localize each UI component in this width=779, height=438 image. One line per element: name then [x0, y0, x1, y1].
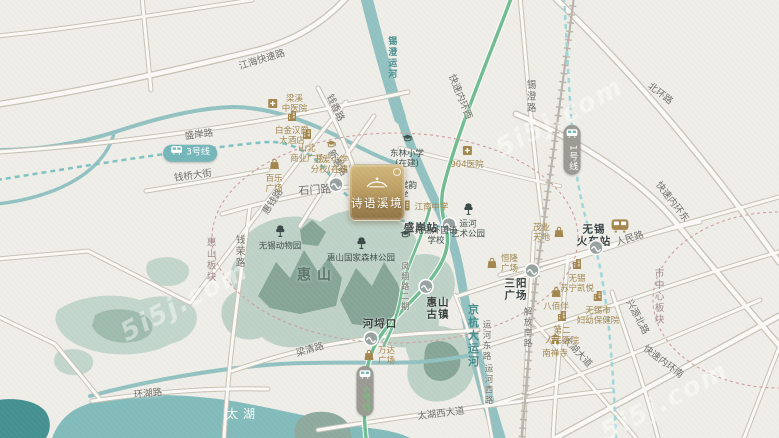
station-label-huishan-old-town-line: 古镇 [427, 309, 450, 321]
poi-baile-plaza-text: 百乐广场 [265, 174, 282, 194]
registered-mark-icon [393, 168, 401, 176]
poi-wuxi-maternity-hospital-line: 无锡市 [577, 306, 620, 316]
poi-baile-plaza[interactable]: 百乐广场 [265, 158, 282, 194]
region-label-huishan-block: 惠山板块 [204, 237, 215, 283]
poi-wuai-primary-school-branch-line: 五爱小学 [311, 155, 352, 165]
poi-nanchan-temple[interactable]: 南禅寺 [542, 333, 568, 359]
map-canvas: 江海快速路盛岸路钱桥大街惠钱路钱香路新惠路石门路快速内环西锡澄路北环路快速内环东… [0, 0, 779, 438]
poi-canal-art-park-text: 运河艺术公园 [451, 219, 485, 239]
road-label-xicheng-road-line: 锡澄路 [524, 80, 535, 115]
poi-huishan-national-forest-park[interactable]: 惠山国家森林公园 [327, 236, 395, 263]
poi-jiangnan-middle-school-line: 江南中学 [414, 202, 448, 212]
road-label-qianqiao-street-text: 钱桥大街 [173, 168, 212, 184]
station-icon-shimen-road[interactable] [328, 177, 344, 198]
poi-baile-plaza-line: 百乐 [265, 174, 282, 184]
road-label-huanhu-road-line: 环湖路 [133, 387, 163, 401]
road-label-inner-ring-south: 快速内环南 [641, 343, 686, 381]
road-label-beihuan-road-line: 北环路 [645, 81, 674, 107]
poi-wanda-plaza-line: 广场 [378, 356, 395, 366]
station-wave-icon [524, 263, 540, 279]
station-label-heleikou-line: 河埒口 [363, 318, 398, 330]
area-label-huishan-mountain-text: 惠山 [297, 268, 337, 285]
road-label-xingyuan-north-road-text: 兴源北路 [623, 298, 651, 337]
road-label-qianrong-road-text: 钱荣路 [233, 235, 244, 270]
metro-line4-badge[interactable]: 4号线 [357, 366, 374, 416]
property-logo-icon [366, 174, 388, 193]
metro-line3-badge[interactable]: 3号线 [163, 145, 217, 162]
school-icon [390, 133, 424, 148]
tree-icon [327, 236, 395, 252]
poi-huishan-national-forest-park-line: 惠山国家森林公园 [327, 254, 395, 264]
poi-huishan-national-forest-park-text: 惠山国家森林公园 [327, 254, 395, 264]
poi-wuai-primary-school-branch-line: 分校(在建) [311, 165, 352, 175]
poi-nanchan-temple-text: 南禅寺 [542, 349, 568, 359]
station-wave-icon [328, 177, 344, 193]
road-label-taihu-west-avenue-text: 太湖西大道 [417, 406, 466, 423]
poi-wuai-primary-school-branch[interactable]: 五爱小学分校(在建) [311, 139, 352, 175]
lake-label-taihu: 太湖 [226, 407, 260, 421]
poi-wuai-primary-school-branch-text: 五爱小学分校(在建) [311, 155, 352, 175]
road-label-jianghai-expressway: 江海快速路 [238, 48, 287, 73]
road-label-xingyuan-north-road-line: 兴源北路 [623, 298, 651, 337]
road-label-liangqing-road-line: 梁清路 [295, 341, 325, 360]
poi-wanda-plaza-line: 万达 [378, 346, 395, 356]
poi-wuxi-foreign-language-school[interactable]: 无锡外国语学校 [399, 226, 458, 246]
road-label-jiefang-south-road-text: 解放南路 [522, 307, 532, 349]
poi-maoye-tiandi-line: 茂业 [533, 223, 550, 233]
metro-line4-badge-text: 4号线 [360, 385, 371, 412]
road-label-yunhe-west-road-text: 运河西路 [483, 364, 493, 406]
property-marker[interactable]: 诗语溪境 [349, 164, 405, 221]
building-icon [560, 258, 594, 273]
station-label-sanyang-plaza-line: 三阳 [505, 278, 528, 290]
hospital-icon [450, 144, 483, 159]
poi-liangxi-tcm-hospital-line: 梁溪 [282, 94, 308, 104]
poi-904-hospital-line: 904医院 [450, 160, 483, 170]
river-label-xicheng-canal-text: 锡澄运河 [386, 36, 397, 80]
lake-label-taihu-text: 太湖 [226, 407, 260, 421]
building-icon [577, 290, 620, 305]
road-label-huanhu-road-text: 环湖路 [133, 387, 163, 401]
poi-henglong-plaza[interactable]: 恒隆广场 [486, 254, 518, 274]
metro-line1-badge-text: 1号线 [567, 144, 578, 171]
road-label-liangqing-road: 梁清路 [295, 341, 325, 360]
bag-icon [553, 225, 565, 240]
road-label-shimen-road: 石门路 [298, 183, 332, 198]
river-label-jinghang-grand-canal-line: 京杭大运河 [466, 304, 479, 369]
road-label-jianghai-expressway-text: 江海快速路 [238, 48, 287, 73]
road-label-yunhe-east-road-text: 运河东路 [481, 320, 491, 362]
tree-icon [259, 224, 302, 240]
road-label-shengan-road-line: 盛岸路 [184, 128, 214, 143]
road-label-shimen-road-line: 石门路 [298, 183, 332, 198]
region-label-huishan-block-text: 惠山板块 [204, 237, 215, 283]
temple-icon [542, 333, 568, 348]
road-label-taihu-west-avenue-line: 太湖西大道 [417, 406, 466, 423]
area-label-huishan-mountain-line: 惠山 [297, 268, 337, 285]
train-icon [170, 146, 183, 159]
poi-wuxi-maternity-hospital-text: 无锡市妇幼保健院 [577, 306, 620, 326]
school-icon-gold [311, 139, 352, 154]
building-icon [545, 310, 579, 325]
poi-wuxi-zoo[interactable]: 无锡动物园 [259, 224, 302, 251]
road-label-yunhe-west-road: 运河西路 [483, 364, 493, 406]
watermark-text: 5i5j.com [491, 72, 629, 165]
bag-icon [543, 286, 569, 301]
metro-line1-badge[interactable]: 1号线 [564, 125, 581, 175]
road-label-fengxiang-road-phase2: 凤翔路二期 [400, 262, 409, 312]
road-label-inner-ring-south-text: 快速内环南 [641, 343, 686, 381]
poi-canal-art-park-line: 艺术公园 [451, 230, 485, 240]
metro-line3-badge-text: 3号线 [186, 147, 210, 158]
region-label-city-center-block-text: 市中心板块 [652, 268, 663, 326]
road-label-shengan-road: 盛岸路 [184, 128, 214, 143]
poi-henglong-plaza-line: 广场 [501, 264, 518, 274]
poi-904-hospital[interactable]: 904医院 [450, 144, 483, 170]
station-label-huishan-old-town-line: 惠山 [427, 297, 450, 309]
road-label-inner-ring-east-text: 快速内环东 [653, 180, 691, 224]
road-label-qianqiao-street-line: 钱桥大街 [173, 168, 212, 184]
road-label-qianxiang-road-line: 钱香路 [324, 93, 347, 124]
station-label-huishan-old-town[interactable]: 惠山古镇 [427, 297, 450, 322]
road-label-xicheng-road: 锡澄路 [524, 80, 535, 115]
poi-jiangnan-middle-school[interactable]: 江南中学 [399, 199, 448, 214]
station-wave-icon [363, 331, 379, 347]
watermark-line: 5i5j.com [491, 72, 629, 165]
road-label-inner-ring-west-text: 快速内环西 [446, 73, 474, 121]
road-label-taihu-west-avenue: 太湖西大道 [417, 406, 466, 423]
station-label-heleikou-text: 河埒口 [363, 318, 398, 330]
road-label-yunhe-east-road: 运河东路 [481, 320, 491, 362]
station-label-sanyang-plaza[interactable]: 三阳广场 [505, 278, 528, 303]
poi-wuxi-maternity-hospital[interactable]: 无锡市妇幼保健院 [577, 290, 620, 326]
station-label-heleikou[interactable]: 河埒口 [363, 318, 398, 330]
road-label-liangqing-road-text: 梁清路 [295, 341, 325, 360]
poi-baile-plaza-line: 广场 [265, 184, 282, 194]
poi-wanda-plaza-text: 万达广场 [378, 346, 395, 366]
road-label-jiefang-south-road-line: 解放南路 [522, 307, 532, 349]
road-label-qianrong-road-line: 钱荣路 [233, 235, 244, 270]
river-label-jinghang-grand-canal: 京杭大运河 [466, 304, 479, 369]
region-label-huishan-block-line: 惠山板块 [204, 237, 215, 283]
poi-maoye-tiandi-line: 天地 [533, 233, 550, 243]
bag-icon [486, 256, 498, 271]
station-label-huishan-old-town-text: 惠山古镇 [427, 297, 450, 322]
poi-yaohan[interactable]: 八佰伴 [543, 286, 569, 312]
bag-icon [265, 158, 282, 173]
property-name: 诗语溪境 [351, 195, 403, 211]
poi-wuxi-railway-station-train[interactable] [609, 219, 631, 238]
road-label-inner-ring-east: 快速内环东 [653, 180, 691, 224]
road-label-fengxiang-road-phase2-text: 凤翔路二期 [400, 262, 409, 312]
river-label-xicheng-canal: 锡澄运河 [386, 36, 397, 80]
station-wave-icon [418, 279, 434, 295]
station-wave-icon [588, 240, 604, 256]
road-label-qianxiang-road: 钱香路 [324, 93, 347, 124]
poi-henglong-plaza-text: 恒隆广场 [501, 254, 518, 274]
road-label-qianxiang-road-text: 钱香路 [324, 93, 347, 124]
road-label-huanhu-road: 环湖路 [133, 387, 163, 401]
river-label-jinghang-grand-canal-text: 京杭大运河 [466, 304, 479, 369]
road-label-inner-ring-south-line: 快速内环南 [641, 343, 686, 381]
road-label-jiefang-south-road: 解放南路 [522, 307, 532, 349]
river-label-xicheng-canal-line: 锡澄运河 [386, 36, 397, 80]
bag-icon [363, 348, 375, 363]
poi-donglin-primary-school-line: 东林小学 [390, 149, 424, 159]
road-label-shimen-road-text: 石门路 [298, 183, 332, 198]
poi-canal-art-park-line: 运河 [451, 219, 485, 229]
region-label-city-center-block: 市中心板块 [652, 268, 663, 326]
poi-maoye-tiandi[interactable]: 茂业天地 [533, 223, 565, 243]
poi-nanchan-temple-line: 南禅寺 [542, 349, 568, 359]
train-icon [359, 370, 372, 383]
poi-wuxi-maternity-hospital-line: 妇幼保健院 [577, 316, 620, 326]
lake-label-taihu-line: 太湖 [226, 407, 260, 421]
poi-904-hospital-text: 904医院 [450, 160, 483, 170]
road-label-yunhe-east-road-line: 运河东路 [481, 320, 491, 362]
road-label-xingyuan-north-road: 兴源北路 [623, 298, 651, 337]
road-label-qianqiao-street: 钱桥大街 [173, 168, 212, 184]
tree-icon [451, 202, 485, 218]
road-label-inner-ring-west-line: 快速内环西 [446, 73, 474, 121]
road-label-yunhe-west-road-line: 运河西路 [483, 364, 493, 406]
region-label-city-center-block-line: 市中心板块 [652, 268, 663, 326]
poi-wuxi-zoo-line: 无锡动物园 [259, 242, 302, 252]
road-label-shengan-road-text: 盛岸路 [184, 128, 214, 143]
road-label-fengxiang-road-phase2-line: 凤翔路二期 [400, 262, 409, 312]
road-label-qianrong-road: 钱荣路 [233, 235, 244, 270]
road-label-beihuan-road-text: 北环路 [645, 81, 674, 107]
train-icon [566, 129, 579, 142]
poi-jiangnan-middle-school-text: 江南中学 [414, 202, 448, 212]
road-label-inner-ring-east-line: 快速内环东 [653, 180, 691, 224]
watermark: 5i5j.com [491, 72, 629, 165]
poi-canal-art-park[interactable]: 运河艺术公园 [451, 202, 485, 239]
poi-wuxi-zoo-text: 无锡动物园 [259, 242, 302, 252]
road-label-inner-ring-west: 快速内环西 [446, 73, 474, 121]
poi-wanda-plaza[interactable]: 万达广场 [363, 346, 395, 366]
school-icon [399, 228, 412, 243]
road-label-beihuan-road: 北环路 [645, 81, 674, 107]
poi-henglong-plaza-line: 恒隆 [501, 254, 518, 264]
road-label-xicheng-road-text: 锡澄路 [524, 80, 535, 115]
area-label-huishan-mountain: 惠山 [297, 268, 337, 285]
train-icon-gold [609, 219, 631, 237]
road-label-jianghai-expressway-line: 江海快速路 [238, 48, 287, 73]
building-icon [275, 110, 309, 125]
station-label-wuxi-railway-station-line: 无锡 [577, 224, 612, 236]
poi-maoye-tiandi-text: 茂业天地 [533, 223, 550, 243]
station-label-sanyang-plaza-text: 三阳广场 [505, 278, 528, 303]
poi-suning-kaiyue-hotel-line: 无锡 [560, 274, 594, 284]
station-label-sanyang-plaza-line: 广场 [505, 290, 528, 302]
